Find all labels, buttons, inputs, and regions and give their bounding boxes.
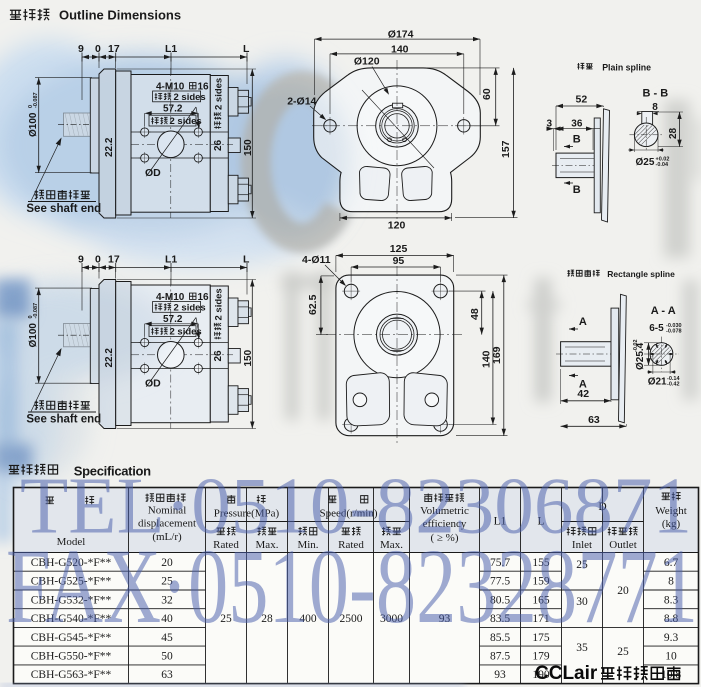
svg-text:B: B [573, 184, 581, 196]
svg-text:17: 17 [108, 254, 120, 266]
svg-text:B - B: B - B [643, 88, 669, 100]
svg-text:10: 10 [665, 651, 677, 663]
svg-text:-0.078: -0.078 [666, 329, 682, 335]
svg-text:A: A [579, 316, 587, 328]
svg-text:CBH-G563-*F**: CBH-G563-*F** [31, 669, 112, 681]
svg-text:Ø21: Ø21 [648, 377, 667, 388]
svg-text:CCLair: CCLair [535, 663, 598, 684]
svg-text:2 sides: 2 sides [170, 327, 202, 338]
svg-text:60: 60 [481, 88, 493, 100]
svg-text:169: 169 [491, 346, 503, 364]
svg-text:62.5: 62.5 [307, 294, 319, 315]
svg-text:0: 0 [95, 254, 101, 266]
svg-text:17: 17 [108, 43, 120, 55]
svg-text:CBH-G550-*F**: CBH-G550-*F** [31, 651, 112, 663]
svg-text:63: 63 [161, 669, 173, 681]
svg-text:42: 42 [577, 388, 589, 400]
svg-text:63: 63 [588, 414, 600, 426]
svg-text:26: 26 [213, 350, 224, 362]
svg-text:A - A: A - A [651, 305, 676, 317]
svg-text:36: 36 [571, 119, 583, 130]
svg-text:-0.42: -0.42 [667, 382, 680, 388]
svg-text:179: 179 [532, 651, 550, 663]
svg-text:L: L [243, 43, 250, 55]
svg-text:9: 9 [78, 254, 84, 266]
svg-text:6-5: 6-5 [649, 323, 664, 334]
svg-text:2 sides: 2 sides [174, 303, 206, 314]
svg-text:ØD: ØD [145, 378, 161, 390]
svg-text:FAX·0510-82328771: FAX·0510-82328771 [6, 528, 698, 646]
svg-text:Plain spline: Plain spline [602, 62, 651, 72]
svg-text:157: 157 [500, 140, 512, 158]
svg-text:9: 9 [78, 43, 84, 55]
svg-text:L: L [243, 254, 250, 266]
svg-text:-0.02: -0.02 [633, 339, 639, 352]
svg-text:120: 120 [388, 219, 406, 231]
svg-text:4-Ø11: 4-Ø11 [302, 254, 331, 266]
svg-text:25: 25 [617, 646, 629, 658]
svg-text:Rectangle spline: Rectangle spline [607, 269, 675, 279]
svg-text:0: 0 [95, 43, 101, 55]
svg-text:125: 125 [390, 243, 408, 255]
svg-text:28: 28 [668, 127, 679, 139]
svg-text:2 sides: 2 sides [214, 288, 225, 320]
svg-text:Outline Dimensions: Outline Dimensions [59, 8, 181, 23]
svg-text:50: 50 [161, 651, 173, 663]
svg-text:93: 93 [494, 669, 506, 681]
svg-text:95: 95 [393, 255, 405, 267]
svg-text:48: 48 [469, 308, 481, 320]
svg-text:B: B [573, 134, 581, 146]
svg-text:52: 52 [576, 93, 588, 105]
svg-text:Ø25: Ø25 [636, 157, 655, 168]
svg-text:87.5: 87.5 [490, 651, 510, 663]
svg-text:-0.04: -0.04 [656, 162, 669, 168]
svg-text:Ø120: Ø120 [354, 56, 380, 68]
